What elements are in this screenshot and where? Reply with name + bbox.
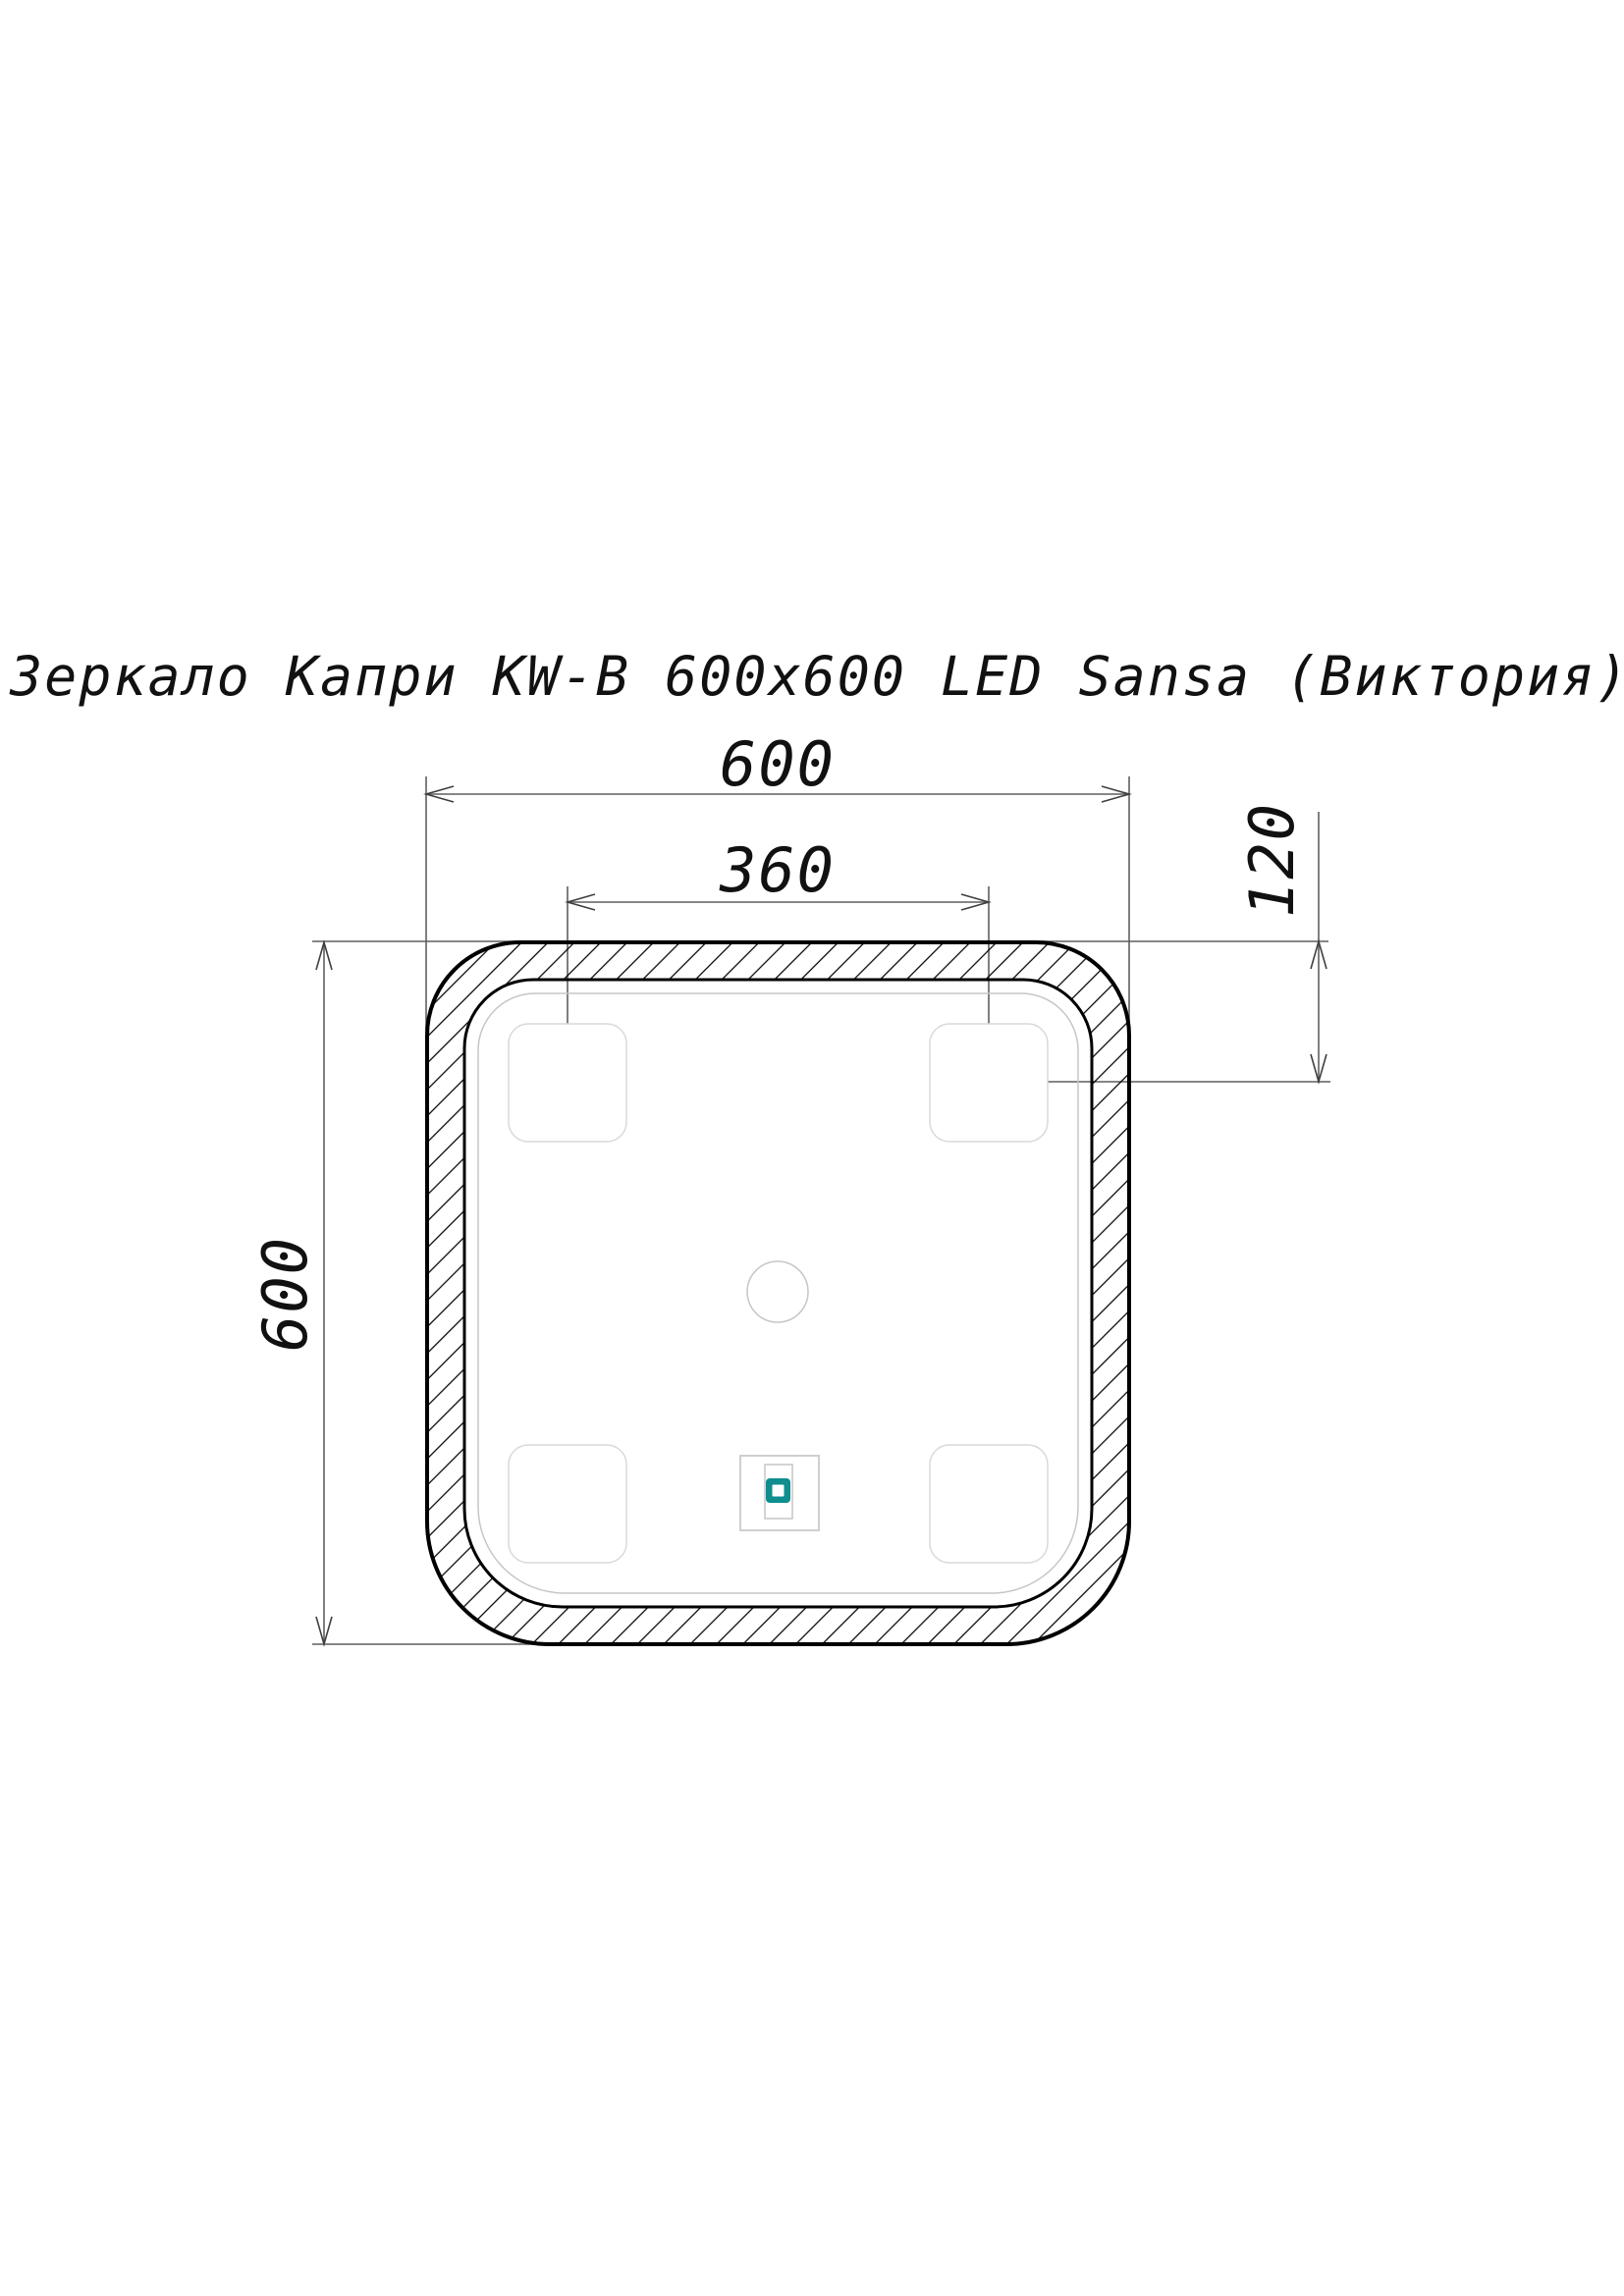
hatched-frame — [427, 942, 1129, 1644]
dimension-label-pad-offset: 120 — [1236, 802, 1308, 918]
touch-sensor-icon — [740, 1456, 819, 1530]
led-pad-top-right — [930, 1024, 1048, 1142]
led-pad-top-left — [509, 1024, 626, 1142]
mirror-features — [509, 1024, 1048, 1563]
arrowheads — [316, 786, 1326, 1644]
dimension-label-width: 600 — [720, 728, 836, 800]
drawing-title: Зеркало Капри KW-B 600x600 LED Sansa (Ви… — [9, 645, 1624, 708]
dimension-label-pad-spacing: 360 — [719, 834, 836, 906]
led-pad-bottom-right — [930, 1445, 1048, 1563]
mirror-body — [427, 942, 1129, 1644]
dimension-label-height: 600 — [249, 1236, 321, 1352]
center-circle — [747, 1261, 808, 1322]
drawing-sheet: Зеркало Капри KW-B 600x600 LED Sansa (Ви… — [0, 0, 1624, 2296]
technical-drawing-canvas: Зеркало Капри KW-B 600x600 LED Sansa (Ви… — [0, 0, 1624, 2296]
led-pad-bottom-left — [509, 1445, 626, 1563]
mirror-outer-edge — [427, 942, 1129, 1644]
sensor-touch-pad-hole — [773, 1485, 785, 1497]
